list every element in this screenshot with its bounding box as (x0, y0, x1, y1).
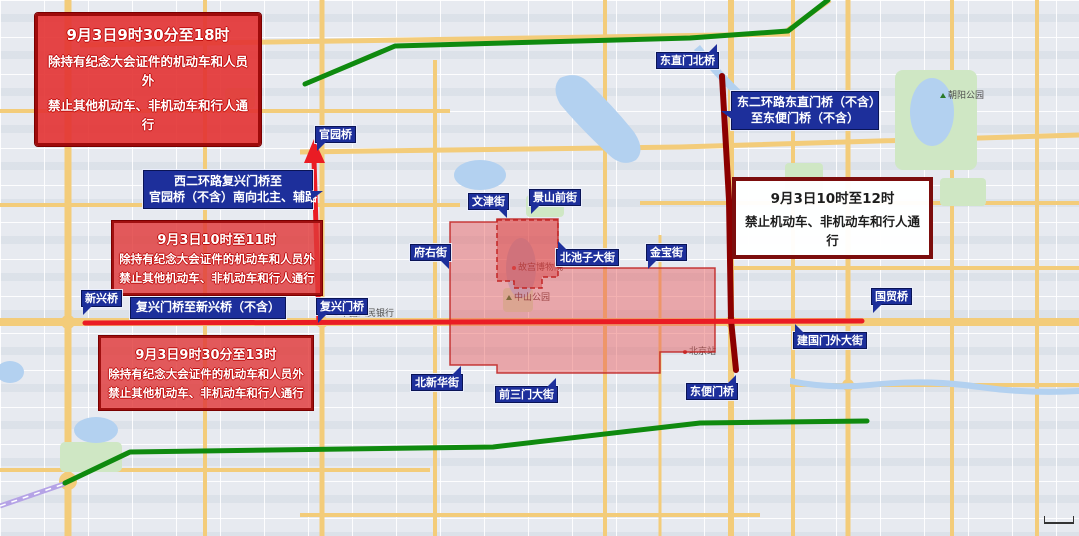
notice-box-sw: 9月3日9时30分至13时 除持有纪念大会证件的机动车和人员外 禁止其他机动车、… (99, 336, 313, 410)
pointer-icon (83, 306, 92, 315)
road-label-jianguomenwai-street: 建国门外大街 (793, 332, 867, 349)
notice-box-west-2nd-ring: 西二环路复兴门桥至 官园桥（不含）南向北主、辅路 (143, 170, 313, 209)
route-south-green (65, 421, 867, 483)
pointer-icon (547, 378, 556, 387)
notice-text: 东二环路东直门桥（不含） (737, 95, 873, 111)
pointer-icon (531, 205, 540, 214)
road-label-guanyuan-bridge: 官园桥 (315, 126, 356, 143)
pointer-icon (721, 111, 733, 120)
notice-box-nw-full-day: 9月3日9时30分至18时 除持有纪念大会证件的机动车和人员外 禁止其他机动车、… (35, 13, 261, 146)
notice-text: 禁止其他机动车、非机动车和行人通行 (119, 270, 315, 286)
notice-text: 复兴门桥至新兴桥（不含） (136, 300, 280, 316)
restricted-zone-area (450, 219, 715, 373)
road-label-beixinhua-street: 北新华街 (411, 374, 463, 391)
pointer-icon (558, 241, 567, 250)
notice-time: 9月3日10时至11时 (119, 229, 315, 248)
traffic-restriction-map: 朝阳公园 北京站 中山公园 故宫博物院 中国人民银行 东直门北桥 官园桥 文津街… (0, 0, 1079, 536)
pointer-icon (873, 304, 882, 313)
notice-box-east-time: 9月3日10时至12时 禁止机动车、非机动车和行人通行 (732, 177, 933, 259)
notice-text: 禁止其他机动车、非机动车和行人通行 (43, 95, 253, 133)
pointer-icon (708, 44, 717, 53)
notice-time: 9月3日9时30分至13时 (106, 344, 306, 363)
notice-text: 禁止机动车、非机动车和行人通行 (740, 211, 925, 249)
road-label-guomao-bridge: 国贸桥 (871, 288, 912, 305)
pointer-icon (317, 142, 326, 151)
road-label-beichizi-street: 北池子大街 (556, 249, 619, 266)
pointer-icon (440, 260, 449, 269)
road-label-dongbianmen-bridge: 东便门桥 (686, 383, 738, 400)
road-label-qiansanmen-street: 前三门大街 (495, 386, 558, 403)
route-north-green (305, 0, 828, 84)
road-label-xinxing-bridge: 新兴桥 (81, 290, 122, 307)
pointer-icon (452, 366, 461, 375)
notice-box-fuxing-to-xinxing: 复兴门桥至新兴桥（不含） (130, 297, 286, 319)
notice-box-east-2nd-ring: 东二环路东直门桥（不含） 至东便门桥（不含） (731, 91, 879, 130)
pointer-icon (318, 314, 327, 323)
road-label-dongzhimen-north-bridge: 东直门北桥 (656, 52, 719, 69)
notice-time: 9月3日9时30分至18时 (43, 24, 253, 45)
pointer-icon (727, 375, 736, 384)
notice-text: 西二环路复兴门桥至 (149, 174, 307, 190)
pointer-icon (311, 191, 323, 200)
road-label-jingshanqian-street: 景山前街 (529, 189, 581, 206)
road-label-fuxingmen-bridge: 复兴门桥 (316, 298, 368, 315)
pointer-icon (795, 324, 804, 333)
road-label-jinbao-street: 金宝街 (646, 244, 687, 261)
notice-text: 除持有纪念大会证件的机动车和人员外 (43, 51, 253, 89)
pointer-icon (648, 260, 657, 269)
notice-text: 官园桥（不含）南向北主、辅路 (149, 190, 307, 206)
notice-text: 禁止其他机动车、非机动车和行人通行 (106, 385, 306, 401)
pointer-icon (498, 209, 507, 218)
notice-text: 除持有纪念大会证件的机动车和人员外 (106, 366, 306, 382)
road-label-wenjin-street: 文津街 (468, 193, 509, 210)
notice-text: 至东便门桥（不含） (737, 111, 873, 127)
notice-text: 除持有纪念大会证件的机动车和人员外 (119, 251, 315, 267)
notice-time: 9月3日10时至12时 (740, 187, 925, 207)
notice-box-mid-west: 9月3日10时至11时 除持有纪念大会证件的机动车和人员外 禁止其他机动车、非机… (112, 221, 322, 295)
road-label-fuyou-street: 府右街 (410, 244, 451, 261)
route-changan-red (85, 321, 862, 323)
